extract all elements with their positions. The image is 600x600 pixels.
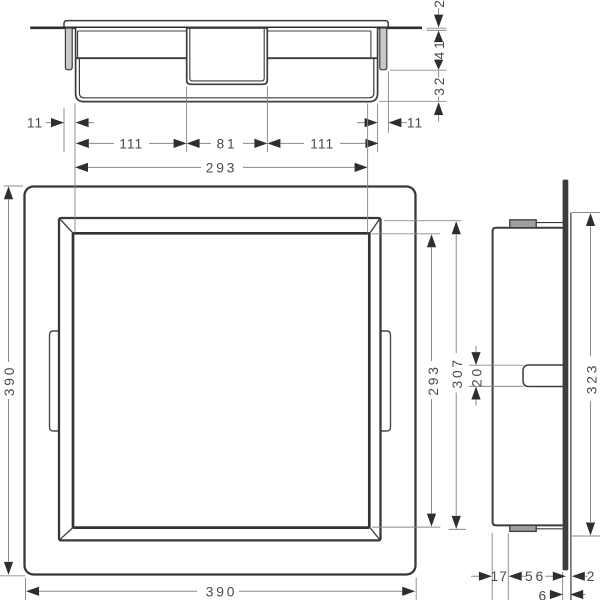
svg-text:307: 307 [450,357,465,388]
svg-text:111: 111 [119,136,143,151]
svg-text:323: 323 [584,363,599,394]
svg-text:2: 2 [432,0,447,8]
svg-text:32: 32 [432,75,447,96]
svg-text:390: 390 [206,584,237,599]
svg-text:111: 111 [310,136,334,151]
svg-text:81: 81 [217,136,238,151]
svg-text:390: 390 [2,365,17,396]
svg-text:20: 20 [469,366,484,387]
svg-text:41: 41 [432,38,447,59]
svg-text:293: 293 [426,364,441,395]
svg-text:6: 6 [539,589,549,600]
svg-text:293: 293 [206,160,237,175]
svg-text:11: 11 [407,116,423,131]
svg-text:2: 2 [587,569,597,584]
svg-text:17: 17 [491,569,508,584]
svg-text:56: 56 [525,569,546,584]
svg-text:11: 11 [27,116,43,131]
